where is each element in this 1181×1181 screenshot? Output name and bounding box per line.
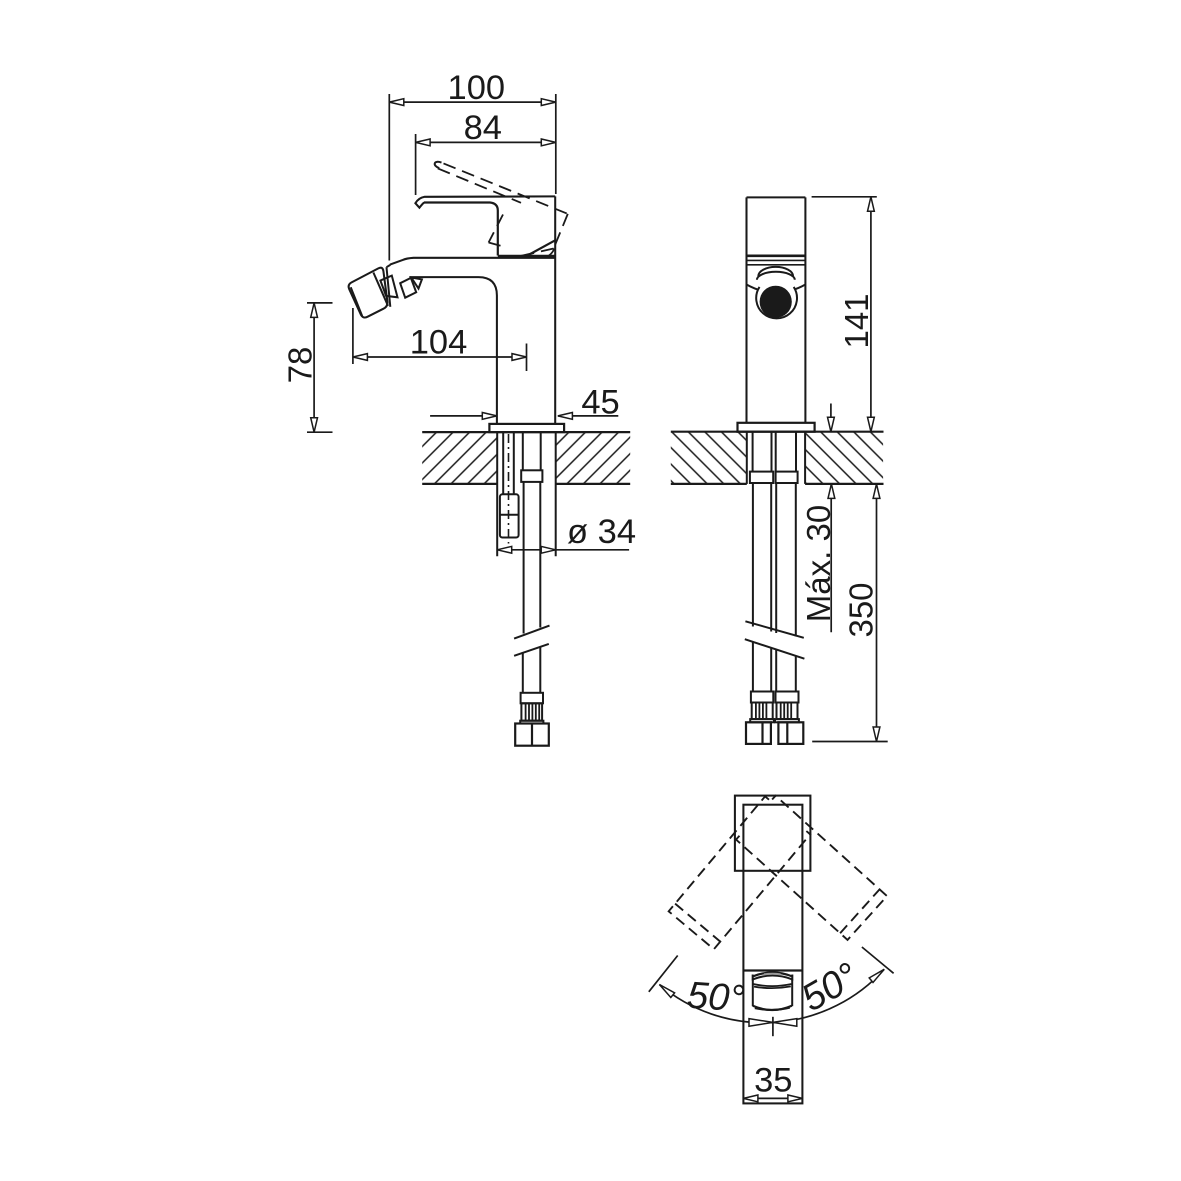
svg-text:104: 104 [410, 324, 468, 362]
svg-text:350: 350 [843, 582, 880, 637]
svg-text:35: 35 [754, 1062, 792, 1100]
svg-text:78: 78 [282, 347, 319, 384]
svg-text:45: 45 [581, 384, 619, 422]
svg-text:84: 84 [464, 109, 502, 147]
svg-text:Máx. 30: Máx. 30 [800, 505, 837, 622]
svg-text:50°: 50° [686, 975, 746, 1021]
svg-text:100: 100 [448, 69, 506, 107]
svg-text:141: 141 [838, 293, 875, 348]
svg-text:ø 34: ø 34 [567, 513, 636, 551]
